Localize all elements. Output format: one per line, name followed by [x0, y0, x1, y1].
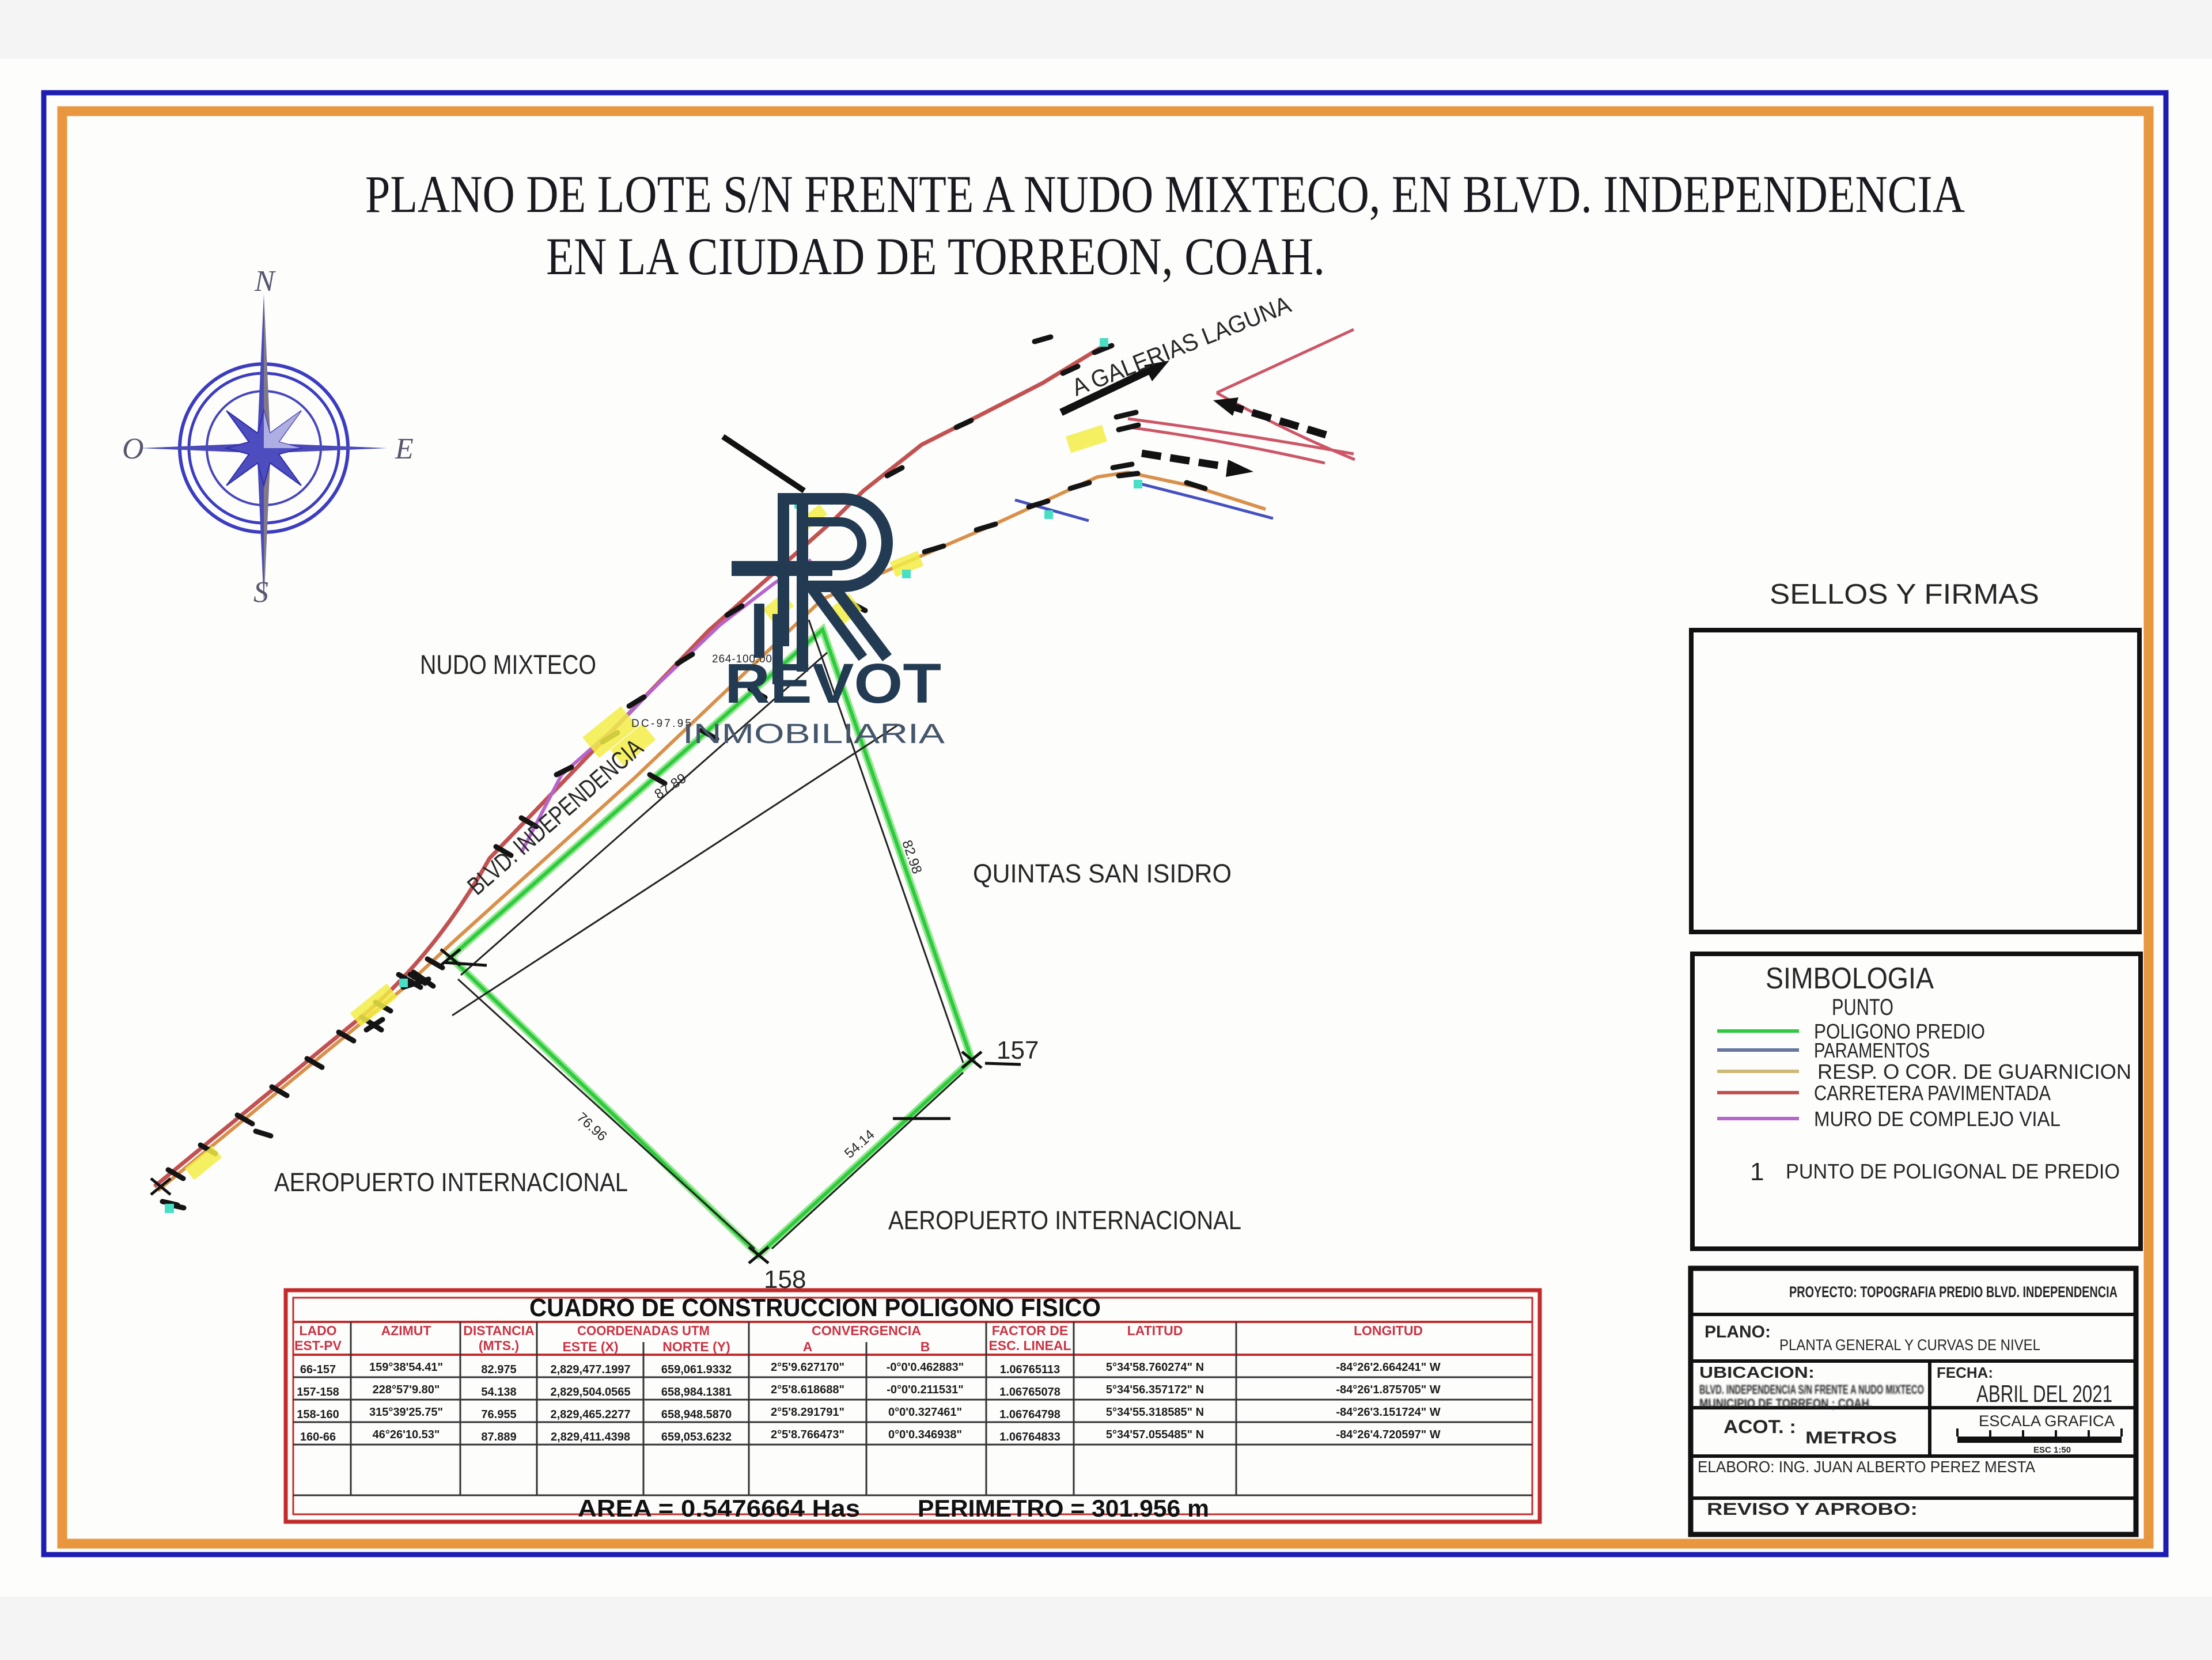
svg-text:1.06764798: 1.06764798 — [999, 1408, 1060, 1421]
svg-text:PLANTA GENERAL Y CURVAS DE NIV: PLANTA GENERAL Y CURVAS DE NIVEL — [1779, 1336, 2040, 1354]
svg-text:REVISO Y APROBO:: REVISO Y APROBO: — [1707, 1500, 1918, 1519]
svg-text:E: E — [395, 433, 414, 465]
svg-text:46°26'10.53": 46°26'10.53" — [373, 1428, 440, 1441]
svg-text:(MTS.): (MTS.) — [479, 1338, 519, 1353]
svg-text:2°5'9.627170": 2°5'9.627170" — [771, 1361, 844, 1374]
svg-text:160-66: 160-66 — [300, 1431, 336, 1443]
svg-text:2,829,477.1997: 2,829,477.1997 — [550, 1363, 630, 1376]
svg-text:ESC 1:50: ESC 1:50 — [2033, 1445, 2071, 1455]
svg-text:-84°26'4.720597" W: -84°26'4.720597" W — [1336, 1428, 1440, 1441]
svg-text:157: 157 — [997, 1036, 1039, 1064]
svg-text:SIMBOLOGIA: SIMBOLOGIA — [1766, 962, 1934, 995]
svg-text:228°57'9.80": 228°57'9.80" — [373, 1384, 440, 1396]
svg-text:2°5'8.291791": 2°5'8.291791" — [771, 1406, 844, 1419]
svg-text:PUNTO DE POLIGONAL DE PREDIO: PUNTO DE POLIGONAL DE PREDIO — [1786, 1159, 2120, 1183]
svg-text:ELABORO: ING. JUAN ALBERTO PE: ELABORO: ING. JUAN ALBERTO PEREZ MESTA — [1698, 1458, 2035, 1476]
svg-text:DISTANCIA: DISTANCIA — [463, 1323, 535, 1338]
svg-text:-84°26'3.151724" W: -84°26'3.151724" W — [1336, 1406, 1440, 1419]
svg-text:658,984.1381: 658,984.1381 — [661, 1386, 732, 1399]
svg-text:-84°26'2.664241" W: -84°26'2.664241" W — [1336, 1361, 1440, 1374]
svg-text:LATITUD: LATITUD — [1127, 1323, 1183, 1338]
svg-text:METROS: METROS — [1805, 1428, 1897, 1447]
svg-text:1.06765078: 1.06765078 — [999, 1386, 1060, 1399]
svg-text:REVOT: REVOT — [725, 652, 941, 715]
svg-text:82.975: 82.975 — [481, 1363, 516, 1376]
svg-text:-0°0'0.211531": -0°0'0.211531" — [887, 1384, 963, 1396]
svg-text:MUNICIPIO DE TORREON ; COAH.: MUNICIPIO DE TORREON ; COAH. — [1699, 1396, 1872, 1411]
svg-text:BLVD. INDEPENDENCIA S/N FRENTE: BLVD. INDEPENDENCIA S/N FRENTE A NUDO MI… — [1699, 1382, 1924, 1397]
svg-text:1.06765113: 1.06765113 — [1000, 1363, 1060, 1376]
svg-text:PERIMETRO = 301.956 m: PERIMETRO = 301.956 m — [918, 1495, 1209, 1522]
svg-text:0°0'0.327461": 0°0'0.327461" — [888, 1406, 962, 1419]
svg-text:AEROPUERTO INTERNACIONAL: AEROPUERTO INTERNACIONAL — [274, 1168, 628, 1197]
svg-text:N: N — [254, 265, 276, 298]
svg-text:5°34'58.760274" N: 5°34'58.760274" N — [1106, 1361, 1204, 1374]
svg-text:ESCALA GRAFICA: ESCALA GRAFICA — [1979, 1412, 2115, 1430]
svg-text:658,948.5870: 658,948.5870 — [661, 1408, 732, 1421]
svg-text:157-158: 157-158 — [297, 1386, 339, 1399]
svg-text:2°5'8.766473": 2°5'8.766473" — [771, 1428, 844, 1441]
svg-text:NUDO MIXTECO: NUDO MIXTECO — [420, 649, 596, 680]
svg-text:EST-PV: EST-PV — [294, 1338, 342, 1353]
svg-text:O: O — [122, 433, 144, 465]
svg-text:FECHA:: FECHA: — [1937, 1364, 1993, 1381]
svg-text:2,829,411.4398: 2,829,411.4398 — [551, 1431, 630, 1443]
svg-text:-0°0'0.462883": -0°0'0.462883" — [887, 1361, 964, 1374]
svg-text:ABRIL DEL 2021: ABRIL DEL 2021 — [1976, 1380, 2112, 1407]
svg-text:ACOT. :: ACOT. : — [1724, 1416, 1796, 1437]
svg-text:5°34'57.055485" N: 5°34'57.055485" N — [1106, 1428, 1204, 1441]
svg-text:5°34'56.357172" N: 5°34'56.357172" N — [1106, 1384, 1204, 1396]
svg-text:159°38'54.41": 159°38'54.41" — [369, 1361, 443, 1374]
svg-text:AEROPUERTO INTERNACIONAL: AEROPUERTO INTERNACIONAL — [888, 1206, 1241, 1235]
svg-text:66-157: 66-157 — [300, 1363, 336, 1376]
svg-text:5°34'55.318585" N: 5°34'55.318585" N — [1106, 1406, 1204, 1419]
svg-text:EN LA CIUDAD DE TORREON, COAH.: EN LA CIUDAD DE TORREON, COAH. — [546, 227, 1325, 286]
svg-text:A: A — [803, 1339, 813, 1354]
svg-text:2°5'8.618688": 2°5'8.618688" — [771, 1384, 844, 1396]
svg-text:659,053.6232: 659,053.6232 — [661, 1431, 732, 1443]
svg-text:2,829,465.2277: 2,829,465.2277 — [550, 1408, 630, 1421]
svg-text:CONVERGENCIA: CONVERGENCIA — [812, 1323, 921, 1338]
svg-text:54.138: 54.138 — [481, 1386, 516, 1399]
svg-text:AREA = 0.5476664 Has: AREA = 0.5476664 Has — [578, 1495, 860, 1522]
svg-text:1: 1 — [1750, 1158, 1764, 1186]
svg-text:SELLOS Y FIRMAS: SELLOS Y FIRMAS — [1770, 579, 2039, 610]
svg-text:ESC. LINEAL: ESC. LINEAL — [988, 1338, 1071, 1353]
svg-text:315°39'25.75": 315°39'25.75" — [369, 1406, 443, 1419]
svg-text:2,829,504.0565: 2,829,504.0565 — [550, 1386, 630, 1399]
svg-text:PLANO DE LOTE S/N FRENTE A NUD: PLANO DE LOTE S/N FRENTE A NUDO MIXTECO,… — [365, 165, 1965, 223]
svg-text:87.889: 87.889 — [481, 1431, 516, 1443]
svg-text:1.06764833: 1.06764833 — [999, 1431, 1060, 1443]
svg-text:659,061.9332: 659,061.9332 — [661, 1363, 732, 1376]
svg-text:PROYECTO: TOPOGRAFIA PREDIO BL: PROYECTO: TOPOGRAFIA PREDIO BLVD. INDEPE… — [1789, 1283, 2118, 1301]
svg-text:INMOBILIARIA: INMOBILIARIA — [683, 719, 945, 749]
svg-text:76.955: 76.955 — [481, 1408, 516, 1421]
svg-text:NORTE (Y): NORTE (Y) — [662, 1339, 730, 1354]
svg-text:PUNTO: PUNTO — [1832, 995, 1893, 1020]
svg-text:UBICACION:: UBICACION: — [1699, 1363, 1815, 1381]
svg-text:PARAMENTOS: PARAMENTOS — [1814, 1039, 1930, 1062]
svg-text:0°0'0.346938": 0°0'0.346938" — [888, 1428, 962, 1441]
svg-text:PLANO:: PLANO: — [1705, 1322, 1771, 1341]
svg-text:QUINTAS SAN ISIDRO: QUINTAS SAN ISIDRO — [973, 859, 1232, 888]
svg-text:ESTE (X): ESTE (X) — [562, 1339, 618, 1354]
svg-text:COORDENADAS UTM: COORDENADAS UTM — [577, 1323, 710, 1338]
svg-text:B: B — [921, 1339, 930, 1354]
svg-text:MURO DE COMPLEJO VIAL: MURO DE COMPLEJO VIAL — [1814, 1107, 2061, 1131]
svg-text:-84°26'1.875705" W: -84°26'1.875705" W — [1336, 1384, 1440, 1396]
svg-text:CARRETERA PAVIMENTADA: CARRETERA PAVIMENTADA — [1814, 1081, 2051, 1105]
svg-text:LONGITUD: LONGITUD — [1354, 1323, 1423, 1338]
svg-text:AZIMUT: AZIMUT — [381, 1323, 431, 1338]
svg-text:158-160: 158-160 — [297, 1408, 339, 1421]
svg-text:S: S — [253, 576, 268, 609]
svg-text:LADO: LADO — [299, 1323, 336, 1338]
svg-text:RESP. O COR. DE GUARNICION: RESP. O COR. DE GUARNICION — [1817, 1060, 2131, 1083]
svg-text:CUADRO DE CONSTRUCCION POLIGON: CUADRO DE CONSTRUCCION POLIGONO FISICO — [529, 1294, 1101, 1322]
svg-text:FACTOR DE: FACTOR DE — [992, 1323, 1068, 1338]
